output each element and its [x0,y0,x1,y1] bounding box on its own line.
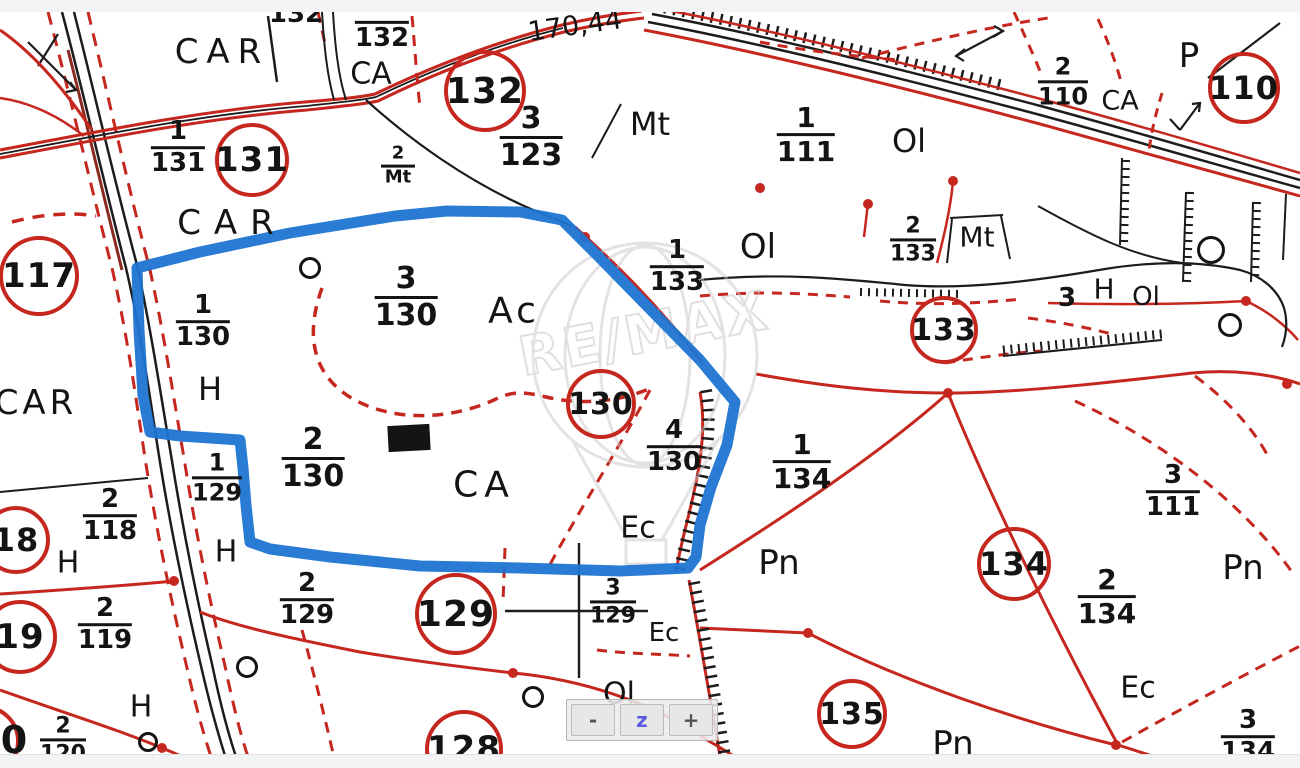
top-page-strip [0,0,1300,12]
zoom-in-button[interactable]: + [669,704,713,736]
zoom-mode-button[interactable]: z [620,704,664,736]
road-top-right [644,6,1300,196]
red-corner-details [0,30,92,136]
road-left-vertical [48,12,252,768]
bottom-page-strip [0,754,1300,768]
zoom-control: - z + [566,699,718,741]
map-linework: RE/MAX [0,0,1300,768]
zoom-out-button[interactable]: - [571,704,615,736]
cadastral-map[interactable]: RE/MAX 132131110117130133134135129128181… [0,0,1300,768]
